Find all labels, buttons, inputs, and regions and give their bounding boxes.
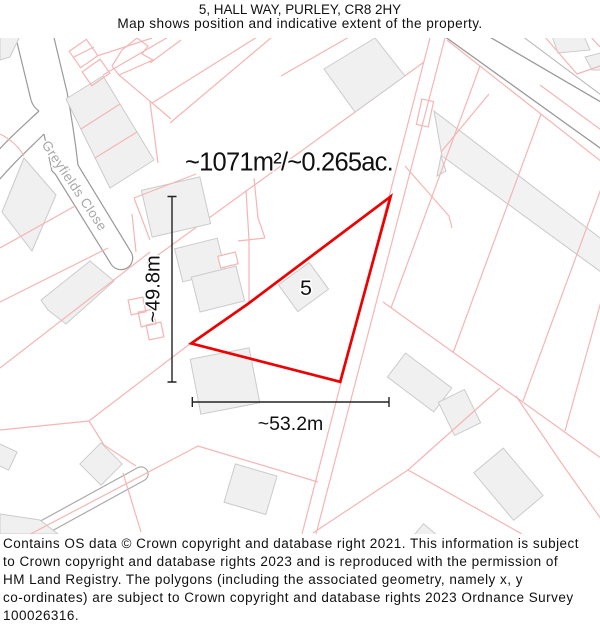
svg-text:~49.8m: ~49.8m	[143, 255, 165, 322]
svg-text:~53.2m: ~53.2m	[258, 413, 324, 435]
svg-text:~1071m²/~0.265ac.: ~1071m²/~0.265ac.	[185, 148, 393, 176]
svg-text:5: 5	[300, 276, 312, 300]
